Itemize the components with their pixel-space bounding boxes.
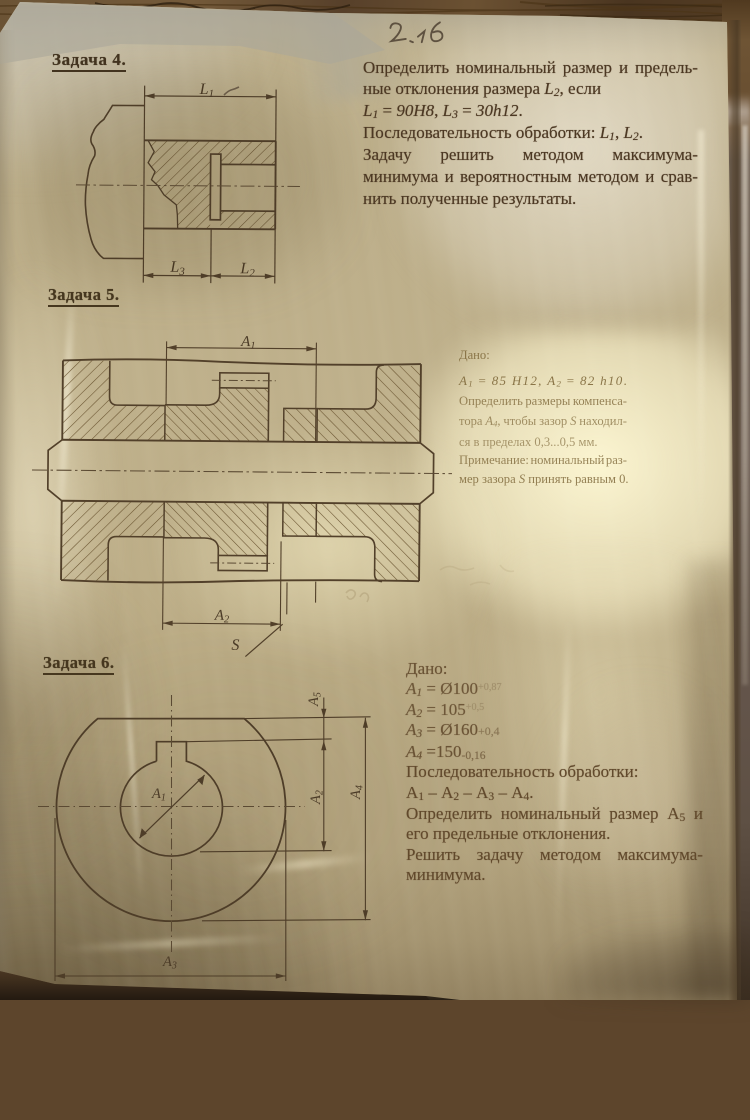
- svg-text:L1: L1: [199, 81, 215, 100]
- svg-text:L2: L2: [239, 260, 255, 279]
- svg-text:A1: A1: [151, 786, 166, 804]
- svg-text:S: S: [231, 637, 239, 654]
- svg-text:A2: A2: [214, 608, 230, 626]
- svg-text:A3: A3: [162, 954, 177, 972]
- svg-text:A1: A1: [240, 334, 256, 352]
- svg-text:A4: A4: [348, 785, 366, 800]
- svg-text:L3: L3: [169, 259, 185, 278]
- svg-text:A2: A2: [308, 790, 326, 805]
- svg-text:A5: A5: [306, 692, 324, 707]
